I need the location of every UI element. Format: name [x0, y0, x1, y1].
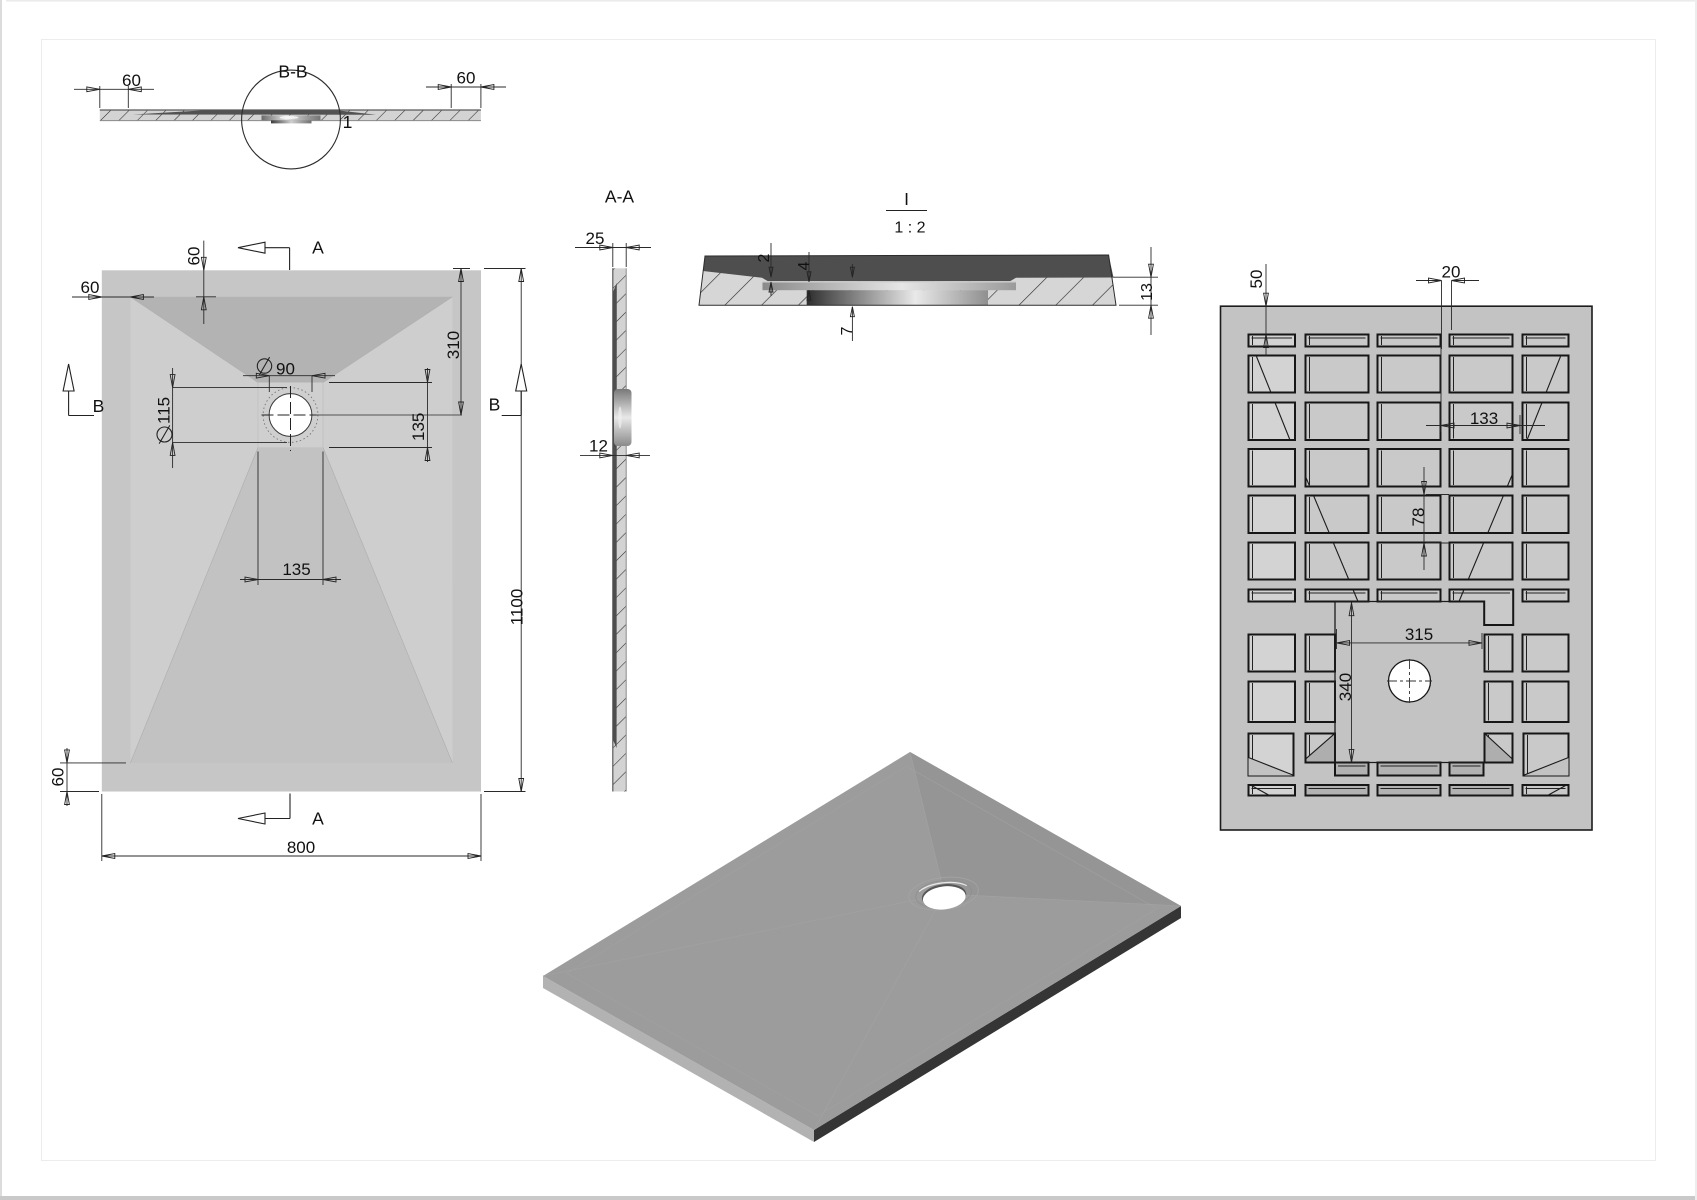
- svg-text:60: 60: [49, 768, 68, 787]
- svg-text:135: 135: [282, 560, 310, 579]
- svg-text:60: 60: [457, 69, 476, 88]
- svg-text:315: 315: [1405, 625, 1433, 644]
- svg-text:800: 800: [287, 838, 315, 857]
- svg-text:1: 1: [343, 112, 353, 132]
- svg-text:12: 12: [589, 437, 608, 456]
- svg-text:20: 20: [1442, 263, 1461, 282]
- svg-text:B: B: [489, 395, 501, 415]
- svg-text:1100: 1100: [508, 589, 527, 626]
- svg-text:13: 13: [1139, 283, 1156, 301]
- svg-text:2: 2: [756, 253, 773, 262]
- svg-text:A-A: A-A: [605, 187, 635, 207]
- svg-text:1 : 2: 1 : 2: [894, 220, 925, 237]
- svg-text:115: 115: [155, 397, 174, 424]
- svg-text:60: 60: [81, 278, 100, 297]
- svg-text:60: 60: [185, 247, 204, 266]
- svg-text:I: I: [904, 189, 909, 209]
- svg-text:7: 7: [839, 326, 856, 335]
- svg-text:A: A: [312, 238, 324, 258]
- svg-text:50: 50: [1247, 270, 1266, 289]
- svg-text:B-B: B-B: [278, 62, 307, 82]
- svg-text:A: A: [312, 809, 324, 829]
- svg-text:135: 135: [409, 413, 428, 441]
- svg-text:340: 340: [1336, 673, 1355, 701]
- svg-text:4: 4: [796, 261, 813, 270]
- svg-text:133: 133: [1470, 409, 1498, 428]
- svg-text:B: B: [93, 396, 105, 416]
- svg-text:25: 25: [586, 229, 605, 248]
- svg-text:60: 60: [122, 71, 141, 90]
- svg-text:78: 78: [1409, 508, 1428, 527]
- svg-text:310: 310: [444, 331, 463, 359]
- svg-text:90: 90: [276, 360, 295, 379]
